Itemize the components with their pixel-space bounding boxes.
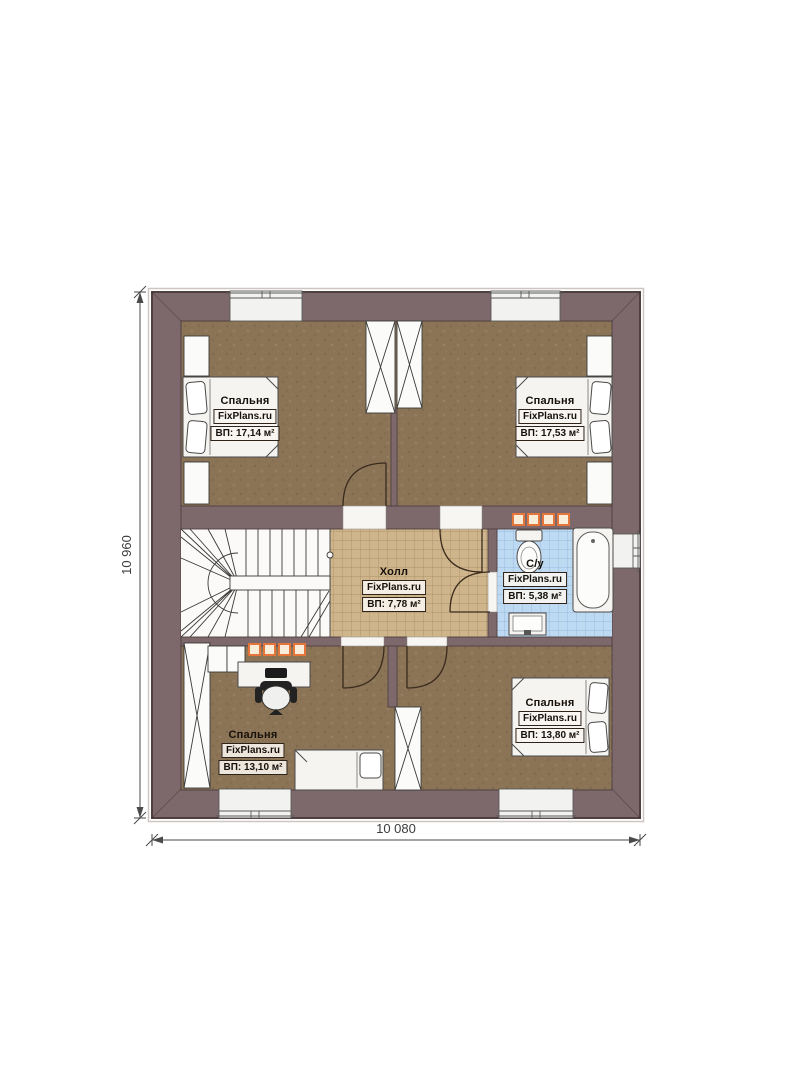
nightstand-tr-upper [587, 336, 612, 376]
chair-armrest-left [255, 687, 262, 703]
room-area-badge: ВП: 13,10 м² [218, 760, 287, 775]
room-label-bedroom-bottom-left: Спальня FixPlans.ru ВП: 13,10 м² [218, 729, 287, 775]
room-area-badge: ВП: 7,78 м² [362, 597, 426, 612]
width-dimension-label: 10 080 [376, 821, 416, 836]
window-right-bathroom [611, 530, 640, 572]
wall-h1-left [181, 506, 343, 529]
monitor [265, 668, 287, 678]
room-name: С/у [526, 558, 544, 570]
bathtub [573, 528, 613, 612]
room-name: Спальня [221, 395, 270, 407]
stairs-stringer [230, 576, 330, 590]
room-area-badge: ВП: 5,38 м² [503, 589, 567, 604]
floor-plan-drawing: 10 960 10 080 [0, 0, 792, 1080]
wall-v2-bath-lower [488, 612, 497, 637]
bed-bottom-left-single [295, 750, 383, 790]
wardrobe-bottom-left-room [184, 643, 210, 788]
wall-v1-top-bedrooms [391, 408, 397, 506]
door-opening-bedroom-top-left [343, 506, 386, 529]
watermark-badge: FixPlans.ru [503, 572, 567, 587]
nightstand-tr-lower [587, 462, 612, 504]
height-dimension-label: 10 960 [119, 535, 134, 575]
window-top-1 [226, 291, 306, 321]
sink [509, 613, 546, 635]
room-name: Холл [380, 566, 408, 578]
room-label-bedroom-bottom-right: Спальня FixPlans.ru ВП: 13,80 м² [515, 697, 584, 743]
wall-h1-mid [386, 506, 440, 529]
door-opening-bathroom [488, 572, 497, 612]
wardrobe-bottom-right-room [395, 707, 421, 790]
door-opening-bedroom-top-right [440, 506, 482, 529]
window-top-2 [487, 291, 564, 321]
watermark-badge: FixPlans.ru [221, 743, 285, 758]
room-label-bedroom-top-right: Спальня FixPlans.ru ВП: 17,53 м² [515, 395, 584, 441]
wardrobe-top-center [366, 321, 422, 413]
room-area-badge: ВП: 17,14 м² [210, 426, 279, 441]
room-label-bathroom: С/у FixPlans.ru ВП: 5,38 м² [503, 558, 567, 604]
nightstand-tl-upper [184, 336, 209, 376]
cabinet-left [208, 646, 227, 672]
watermark-badge: FixPlans.ru [362, 580, 426, 595]
watermark-badge: FixPlans.ru [518, 409, 582, 424]
door-opening-bedroom-bottom-right [407, 637, 447, 646]
room-name: Спальня [229, 729, 278, 741]
window-bottom-2 [495, 789, 577, 818]
chair-seat [262, 686, 290, 710]
room-name: Спальня [526, 395, 575, 407]
nightstand-tl-lower [184, 462, 209, 504]
room-area-badge: ВП: 13,80 м² [515, 728, 584, 743]
wall-h2-right [447, 637, 612, 646]
door-opening-bedroom-bottom-left [341, 637, 384, 646]
room-label-bedroom-top-left: Спальня FixPlans.ru ВП: 17,14 м² [210, 395, 279, 441]
room-area-badge: ВП: 17,53 м² [515, 426, 584, 441]
watermark-badge: FixPlans.ru [518, 711, 582, 726]
window-bottom-1 [215, 789, 295, 818]
watermark-badge: FixPlans.ru [213, 409, 277, 424]
wall-h2-mid [384, 637, 407, 646]
wall-v3-bottom-bedrooms [388, 646, 397, 707]
floor-plan-canvas: 10 960 10 080 Спальня FixPlans.ru ВП: 17… [0, 0, 792, 1080]
wall-v2-bath-upper [488, 529, 497, 572]
stairs-newel-post [327, 552, 333, 558]
room-name: Спальня [526, 697, 575, 709]
dimension-height [134, 286, 146, 824]
chair-armrest-right [290, 687, 297, 703]
room-label-hall: Холл FixPlans.ru ВП: 7,78 м² [362, 566, 426, 612]
